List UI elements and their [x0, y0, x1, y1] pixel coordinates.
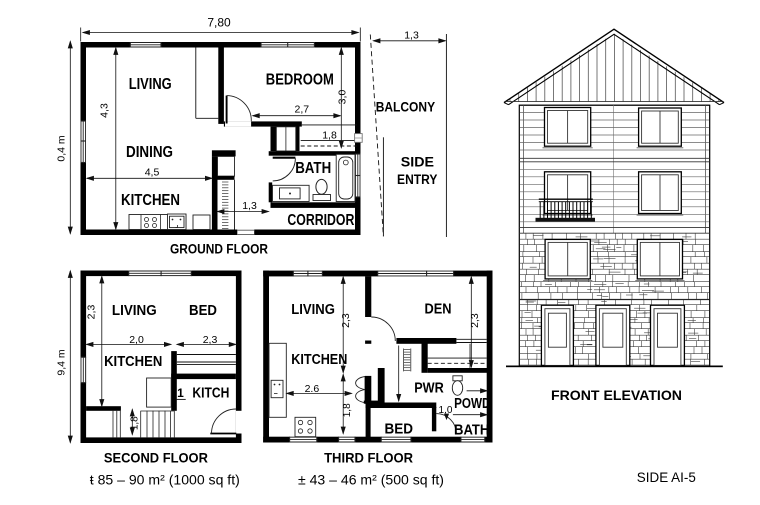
- svg-text:SIDE AI-5: SIDE AI-5: [637, 470, 696, 485]
- svg-text:FRONT ELEVATION: FRONT ELEVATION: [551, 387, 682, 403]
- svg-text:KITCHEN: KITCHEN: [104, 354, 162, 370]
- svg-text:2,0: 2,0: [129, 334, 144, 346]
- svg-text:KITCHEN: KITCHEN: [121, 192, 180, 209]
- svg-text:DINING: DINING: [126, 144, 173, 161]
- svg-text:DEN: DEN: [425, 302, 452, 318]
- svg-text:0,4 m: 0,4 m: [56, 135, 68, 162]
- svg-text:GROUND FLOOR: GROUND FLOOR: [170, 241, 268, 257]
- svg-text:± 43 – 46 m² (500 sq ft): ± 43 – 46 m² (500 sq ft): [298, 473, 444, 488]
- svg-text:1,8: 1,8: [322, 129, 337, 141]
- svg-text:ENTRY: ENTRY: [397, 172, 437, 187]
- svg-text:1,3: 1,3: [404, 30, 419, 42]
- svg-text:CORRIDOR: CORRIDOR: [287, 212, 354, 229]
- svg-text:2,3: 2,3: [203, 334, 218, 346]
- svg-text:9,4 m: 9,4 m: [56, 349, 68, 376]
- svg-text:2,3: 2,3: [469, 313, 481, 328]
- svg-text:LIVING: LIVING: [112, 303, 157, 319]
- svg-text:7,80: 7,80: [207, 16, 231, 30]
- svg-text:LIVING: LIVING: [291, 302, 335, 318]
- svg-text:BED: BED: [385, 421, 414, 437]
- svg-text:2,3: 2,3: [340, 313, 352, 328]
- svg-text:BATH: BATH: [295, 160, 331, 177]
- svg-text:SIDE: SIDE: [401, 155, 434, 170]
- svg-text:BED: BED: [189, 303, 217, 319]
- svg-text:2,7: 2,7: [294, 103, 309, 115]
- svg-text:ŧ 85 – 90 m² (1000 sq ft): ŧ 85 – 90 m² (1000 sq ft): [90, 473, 240, 488]
- svg-text:1: 1: [177, 386, 184, 400]
- svg-text:PWR: PWR: [414, 380, 444, 396]
- svg-text:KITCHEN: KITCHEN: [291, 352, 347, 368]
- svg-text:BATH: BATH: [454, 422, 489, 438]
- svg-text:POWD: POWD: [454, 396, 490, 412]
- svg-text:THIRD FLOOR: THIRD FLOOR: [324, 450, 413, 466]
- svg-text:BALCONY: BALCONY: [376, 100, 435, 115]
- svg-text:LIVING: LIVING: [129, 76, 172, 93]
- svg-text:1,8: 1,8: [129, 416, 140, 430]
- svg-text:BEDROOM: BEDROOM: [266, 72, 334, 89]
- svg-text:SECOND FLOOR: SECOND FLOOR: [104, 450, 208, 466]
- svg-text:2,3: 2,3: [86, 305, 98, 320]
- svg-text:KITCH: KITCH: [192, 386, 229, 402]
- svg-text:2.6: 2.6: [305, 383, 320, 395]
- svg-text:4,3: 4,3: [99, 103, 111, 118]
- svg-text:4,5: 4,5: [145, 167, 160, 179]
- svg-text:1,8: 1,8: [342, 403, 353, 417]
- svg-text:1,3: 1,3: [242, 200, 257, 212]
- svg-text:3,0: 3,0: [336, 90, 348, 105]
